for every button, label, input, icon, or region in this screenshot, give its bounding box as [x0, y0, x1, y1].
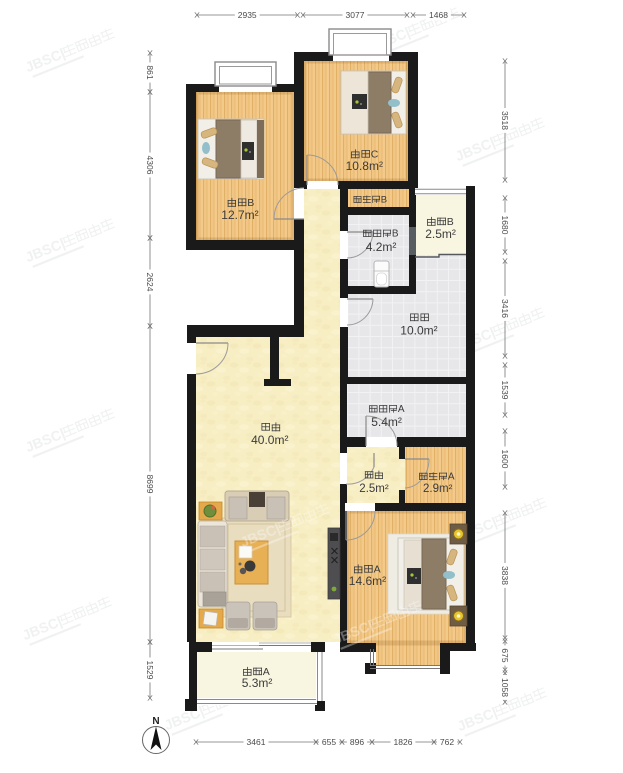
svg-text:A: A: [448, 472, 455, 483]
svg-text:1529: 1529: [145, 661, 155, 680]
svg-text:3461: 3461: [247, 737, 266, 747]
svg-text:2.5m²: 2.5m²: [425, 227, 456, 241]
svg-text:1058: 1058: [500, 678, 510, 697]
svg-text:10.8m²: 10.8m²: [346, 159, 383, 173]
svg-text:3077: 3077: [346, 10, 365, 20]
svg-text:861: 861: [145, 65, 155, 79]
svg-text:1600: 1600: [500, 450, 510, 469]
svg-text:40.0m²: 40.0m²: [251, 433, 288, 447]
svg-text:5.3m²: 5.3m²: [242, 676, 273, 690]
svg-text:1539: 1539: [500, 381, 510, 400]
svg-text:762: 762: [440, 737, 454, 747]
svg-text:B: B: [392, 229, 399, 240]
svg-text:1468: 1468: [429, 10, 448, 20]
svg-text:N: N: [152, 716, 159, 727]
svg-text:1826: 1826: [394, 737, 413, 747]
svg-text:896: 896: [350, 737, 364, 747]
svg-text:2.9m²: 2.9m²: [423, 483, 453, 495]
svg-text:655: 655: [322, 737, 336, 747]
svg-text:2935: 2935: [238, 10, 257, 20]
svg-text:4306: 4306: [145, 156, 155, 175]
svg-text:10.0m²: 10.0m²: [400, 323, 437, 337]
svg-text:2624: 2624: [145, 273, 155, 292]
svg-text:3838: 3838: [500, 566, 510, 585]
svg-text:675: 675: [500, 648, 510, 662]
svg-text:3518: 3518: [500, 111, 510, 130]
svg-text:12.7m²: 12.7m²: [221, 208, 258, 222]
svg-text:8699: 8699: [145, 475, 155, 494]
svg-text:A: A: [398, 404, 405, 415]
svg-text:B: B: [381, 194, 387, 205]
svg-text:4.2m²: 4.2m²: [366, 240, 397, 254]
svg-text:3416: 3416: [500, 299, 510, 318]
svg-text:2.5m²: 2.5m²: [359, 483, 389, 495]
svg-text:5.4m²: 5.4m²: [371, 415, 402, 429]
svg-text:14.6m²: 14.6m²: [349, 574, 386, 588]
svg-text:1680: 1680: [500, 216, 510, 235]
